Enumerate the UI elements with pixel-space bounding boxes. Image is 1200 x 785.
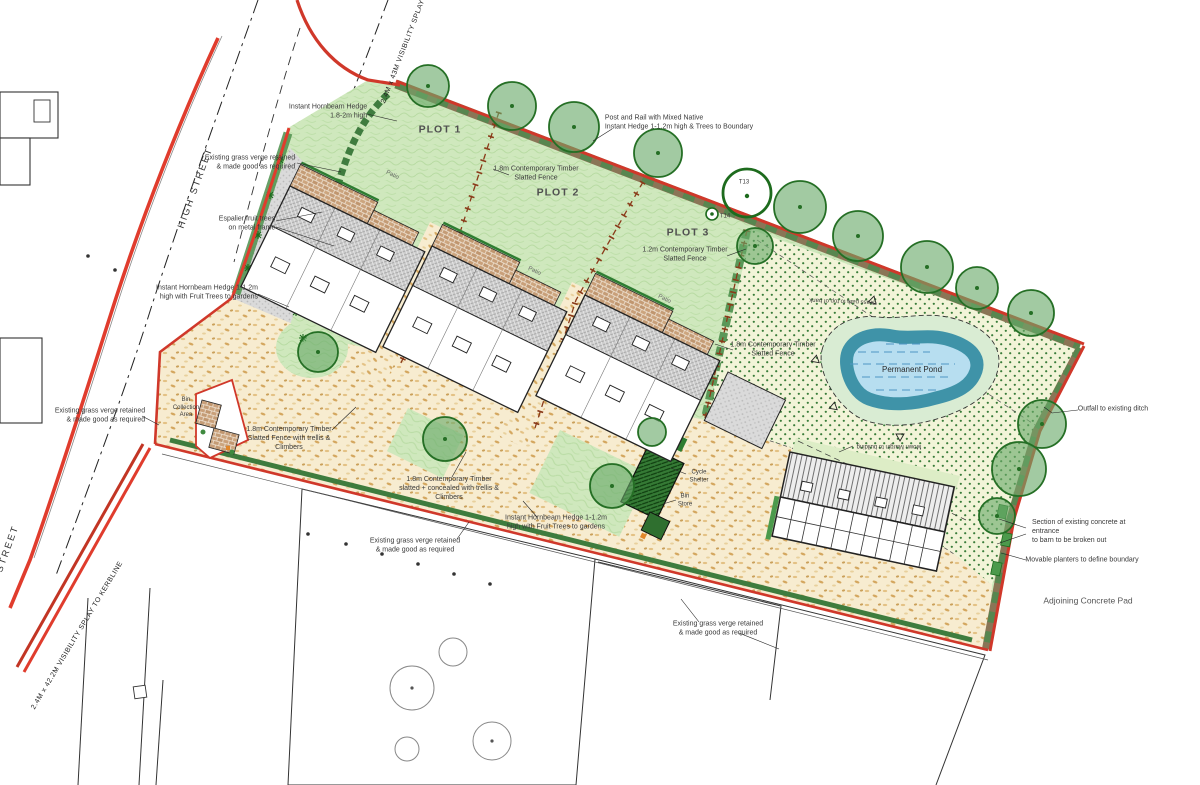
existing-tree-t13 xyxy=(723,169,771,217)
existing-tree-t14 xyxy=(706,208,718,220)
existing-buildings-left xyxy=(0,92,58,423)
site-plan: PLOT 1 PLOT 2 PLOT 3 HIGH STREET HIGH ST… xyxy=(0,0,1200,785)
site-plan-drawing xyxy=(0,0,1200,785)
